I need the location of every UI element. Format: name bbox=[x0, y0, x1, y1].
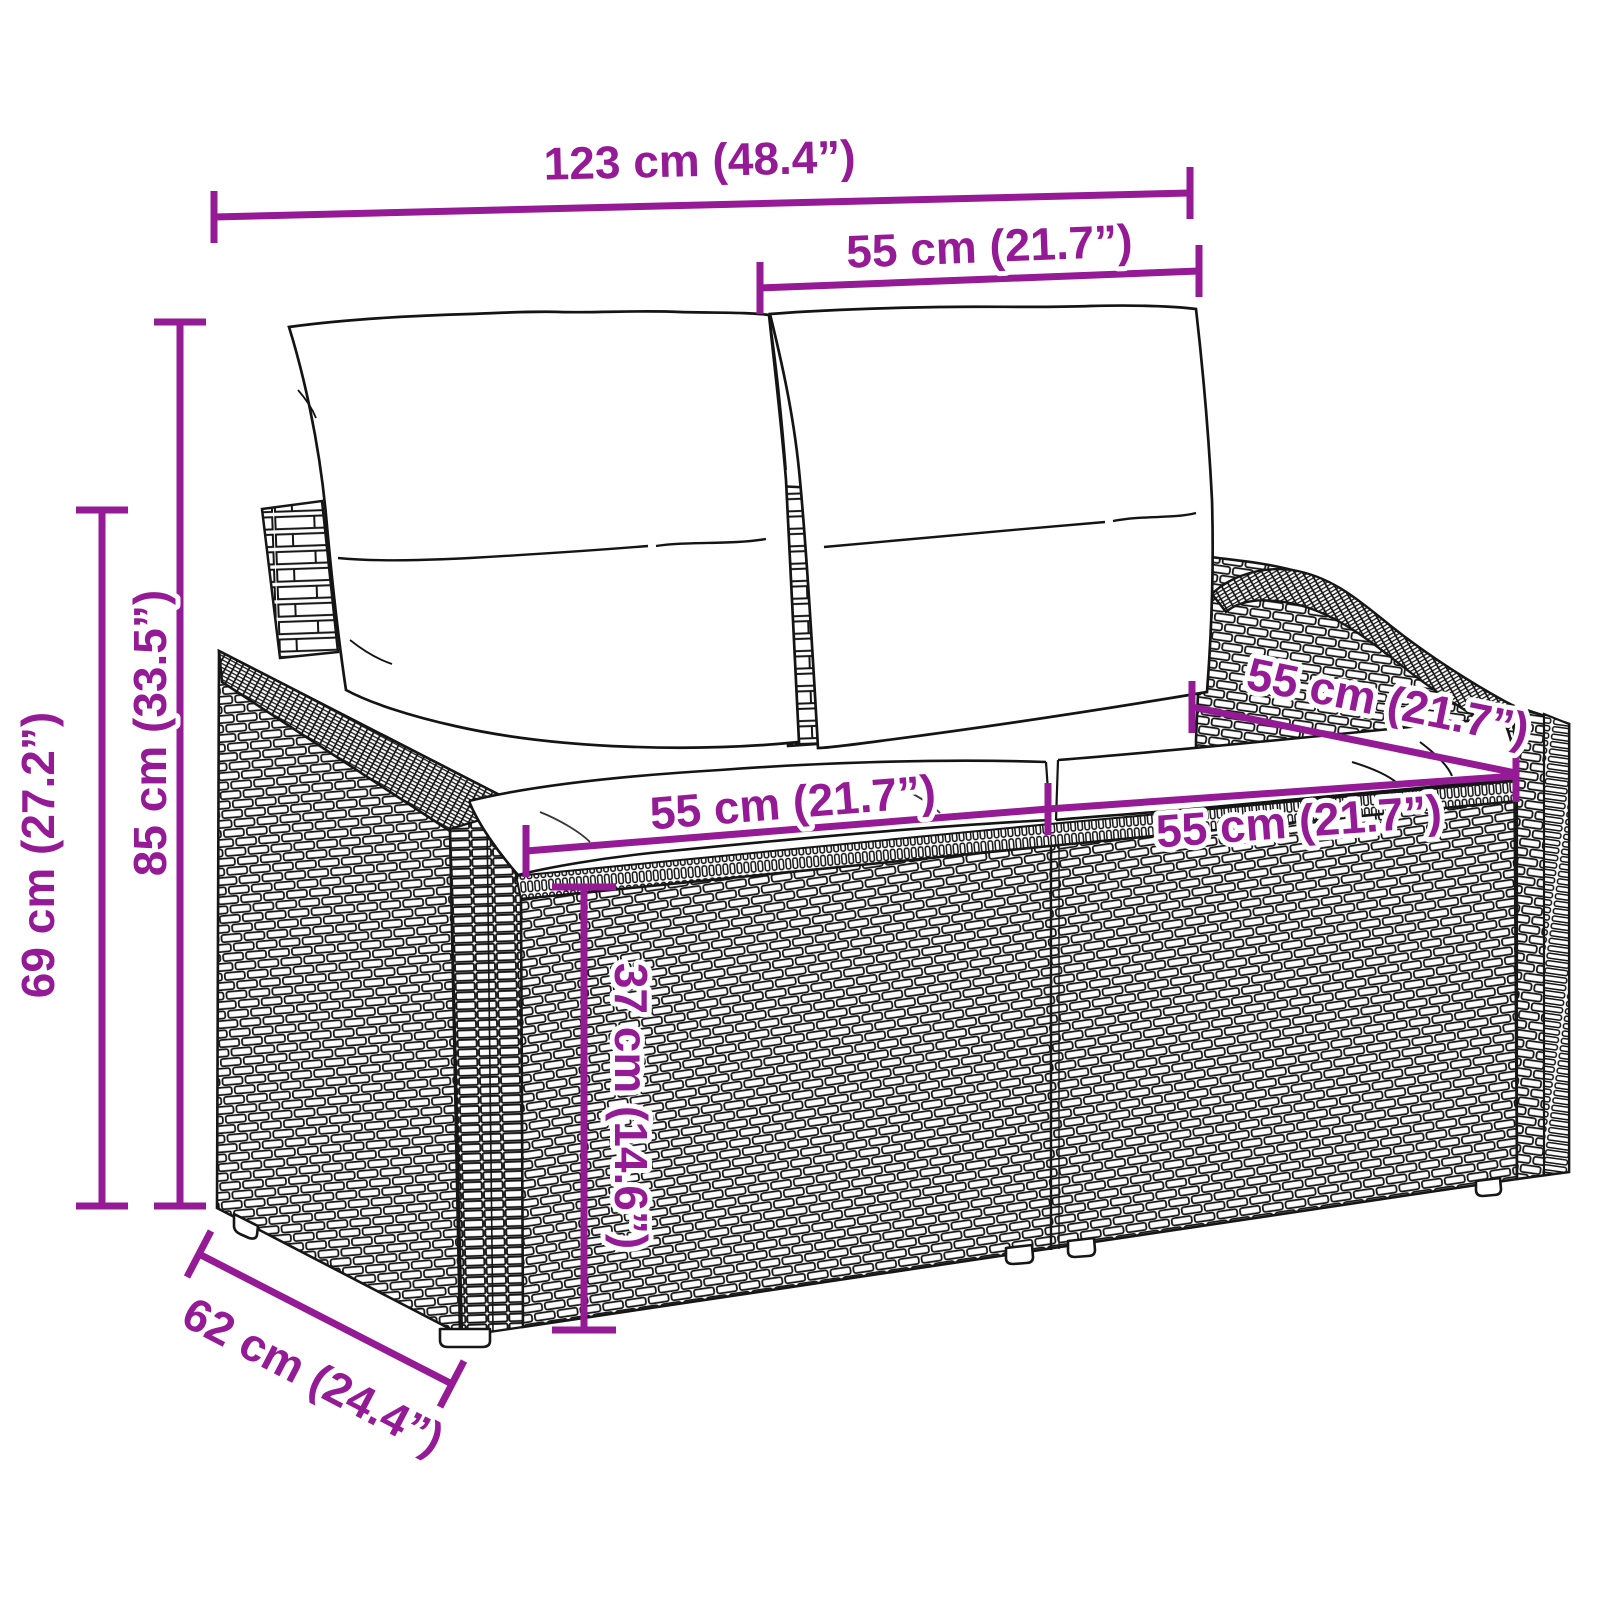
svg-text:69 cm (27.2”): 69 cm (27.2”) bbox=[12, 712, 64, 998]
svg-text:123 cm (48.4”): 123 cm (48.4”) bbox=[543, 130, 856, 190]
svg-text:85 cm (33.5”): 85 cm (33.5”) bbox=[124, 590, 176, 876]
svg-text:37 cm (14.6”): 37 cm (14.6”) bbox=[605, 963, 657, 1249]
